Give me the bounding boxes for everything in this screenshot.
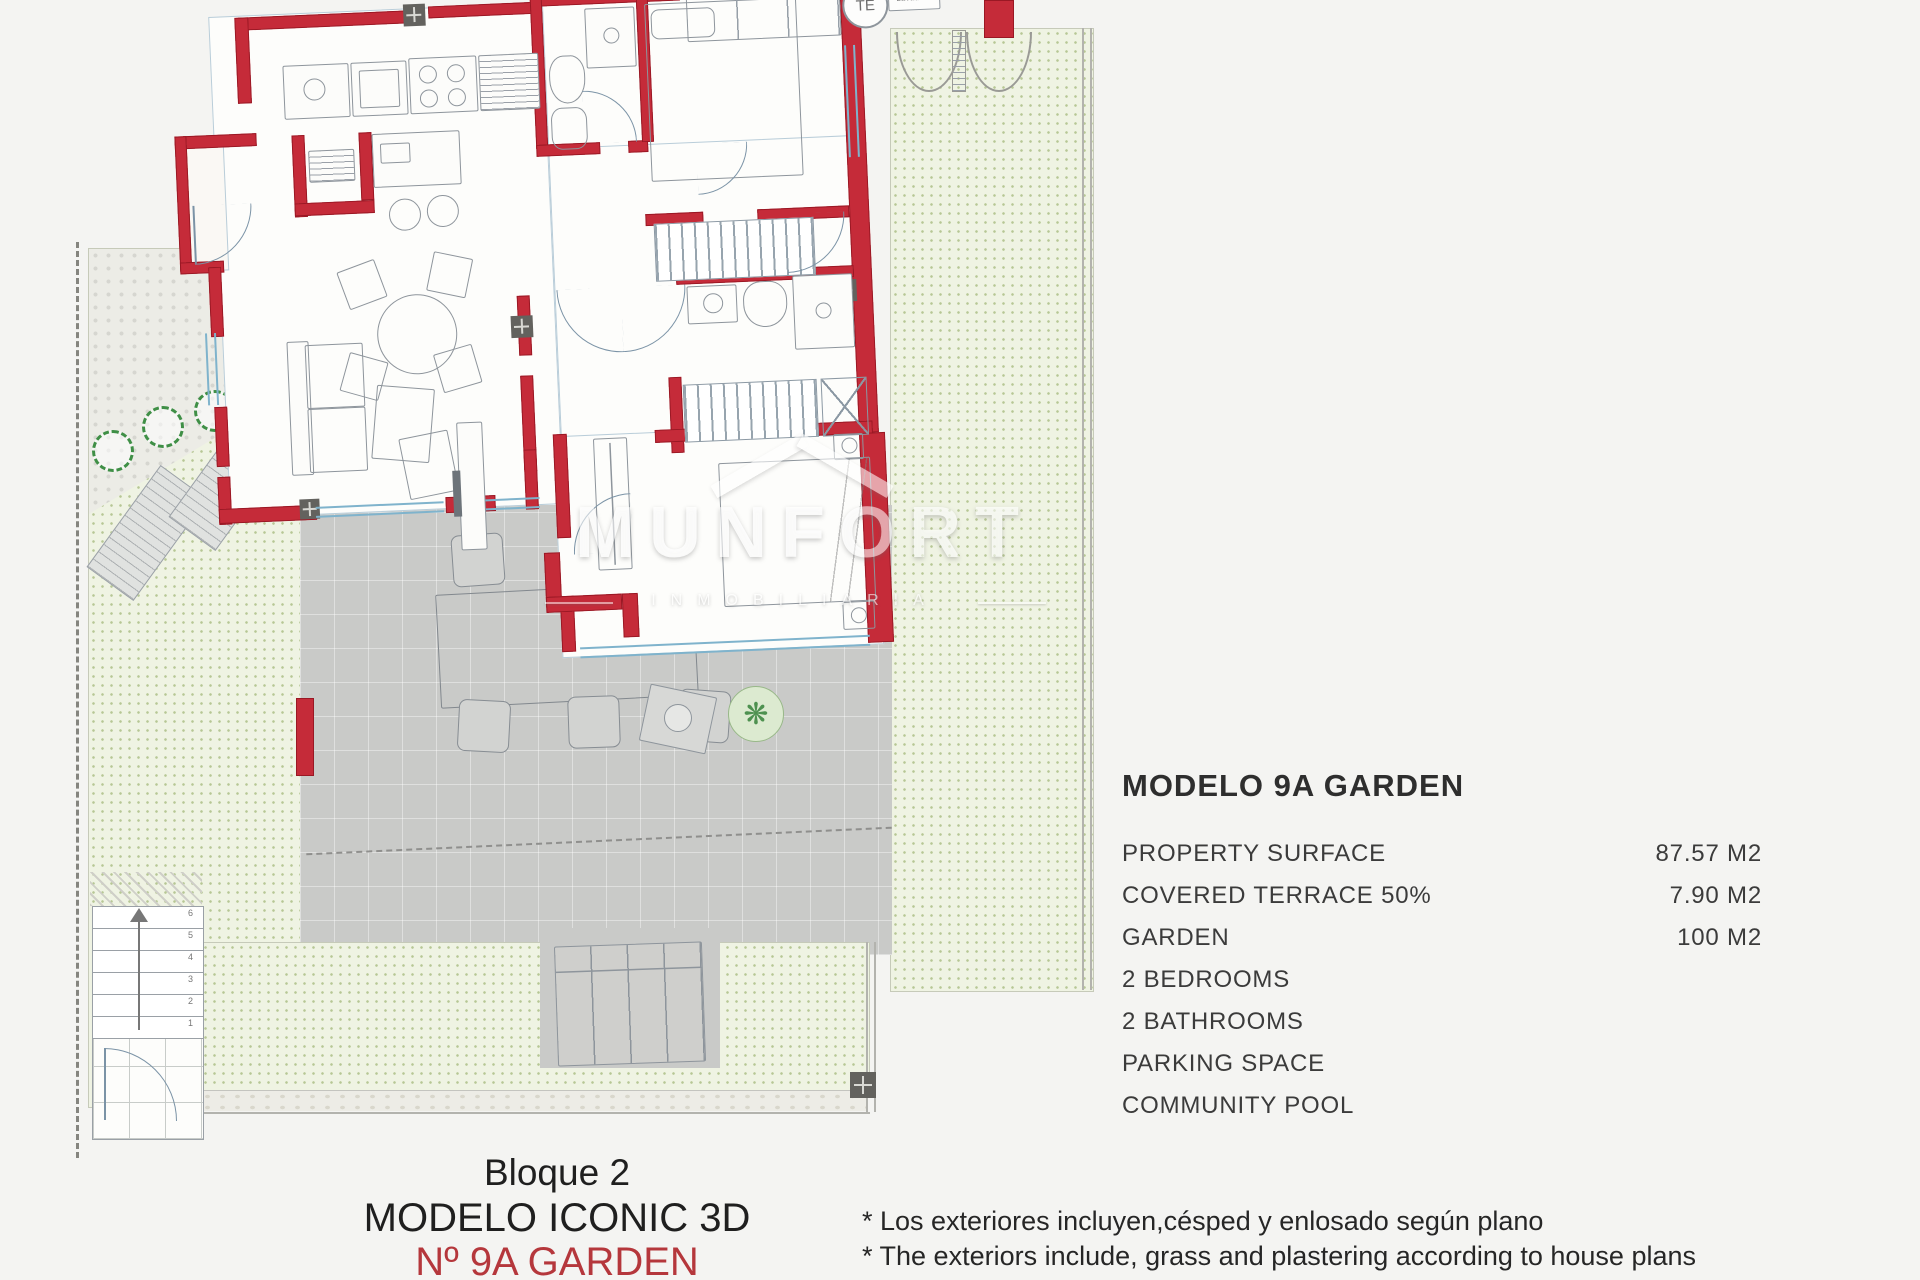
footer-note-en: * The exteriors include, grass and plast… — [862, 1241, 1696, 1272]
spec-label: GARDEN — [1122, 924, 1229, 965]
watermark: MUNFORT INMOBILIARIA — [0, 0, 1100, 1280]
footer-model-line: MODELO ICONIC 3D — [337, 1196, 777, 1241]
spec-row: PROPERTY SURFACE 87.57 M2 — [1122, 840, 1762, 881]
spec-value: 7.90 M2 — [1670, 882, 1762, 923]
watermark-roof-icon — [710, 434, 807, 498]
spec-row: 2 BEDROOMS — [1122, 966, 1762, 1007]
footer-block-line: Bloque 2 — [337, 1152, 777, 1194]
spec-row: COVERED TERRACE 50% 7.90 M2 — [1122, 882, 1762, 923]
spec-row: 2 BATHROOMS — [1122, 1008, 1762, 1049]
watermark-roof-icon — [796, 434, 893, 498]
plan-title: MODELO 9A GARDEN — [1122, 768, 1464, 804]
spec-value: 100 M2 — [1677, 924, 1762, 965]
spec-label: PARKING SPACE — [1122, 1050, 1325, 1091]
footer-note-es: * Los exteriores incluyen,césped y enlos… — [862, 1206, 1543, 1237]
spec-label: COMMUNITY POOL — [1122, 1092, 1354, 1133]
spec-label: PROPERTY SURFACE — [1122, 840, 1386, 881]
spec-row: GARDEN 100 M2 — [1122, 924, 1762, 965]
watermark-rule — [545, 602, 613, 604]
floorplan-page: ❋ 6 5 4 3 2 1 — [0, 0, 1920, 1280]
spec-value: 87.57 M2 — [1656, 840, 1762, 881]
watermark-brand: MUNFORT — [575, 492, 1015, 574]
spec-label: 2 BATHROOMS — [1122, 1008, 1304, 1049]
footer-unit-line: Nº 9A GARDEN — [337, 1240, 777, 1280]
watermark-rule — [978, 602, 1046, 604]
spec-label: 2 BEDROOMS — [1122, 966, 1290, 1007]
spec-row: PARKING SPACE — [1122, 1050, 1762, 1091]
spec-row: COMMUNITY POOL — [1122, 1092, 1762, 1133]
spec-label: COVERED TERRACE 50% — [1122, 882, 1432, 923]
watermark-subtitle: INMOBILIARIA — [575, 592, 1015, 610]
